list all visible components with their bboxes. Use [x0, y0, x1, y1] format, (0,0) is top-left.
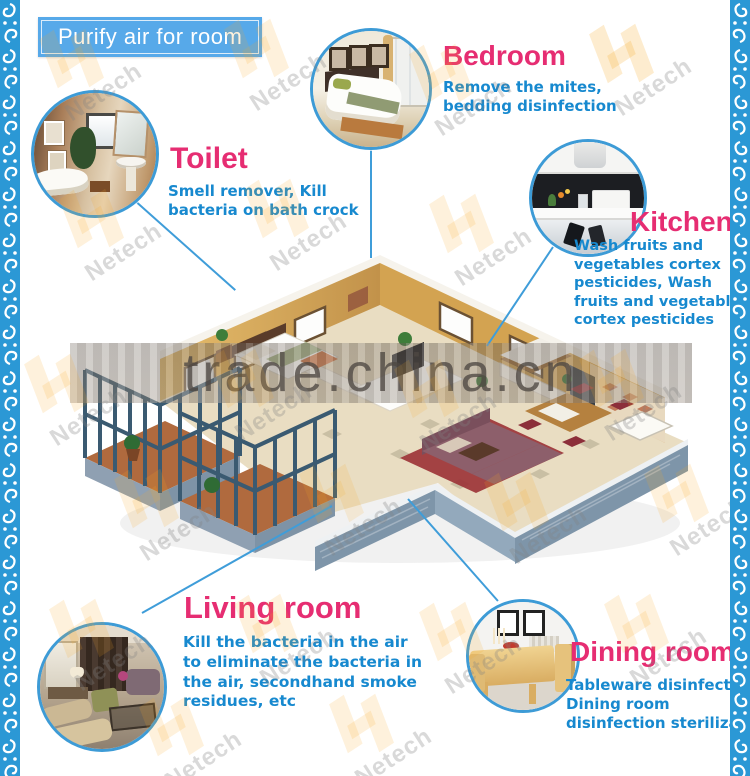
living-room-title: Living room [184, 590, 361, 626]
netech-watermark-text: Netech [350, 722, 437, 776]
living-photo-circle [37, 622, 167, 752]
mirror [112, 110, 149, 158]
wall-art [44, 121, 64, 145]
connector-line-bedroom [370, 145, 372, 258]
bedroom-photo-circle [310, 28, 432, 150]
flower [565, 189, 570, 194]
header-badge: Purify air for room [38, 17, 262, 57]
toilet-photo-circle [31, 90, 159, 218]
range-hood [574, 142, 606, 168]
toilet-description: Smell remover, Kill bacteria on bath cro… [168, 182, 359, 220]
trade-watermark-text: trade.china.cn [183, 342, 578, 404]
netech-watermark-text: Netech [610, 52, 697, 122]
wall-art [369, 44, 389, 68]
dining-room-description: Tableware disinfection. Dining room disi… [566, 676, 750, 734]
wall-art [523, 610, 545, 636]
lamp [70, 667, 84, 678]
bedroom-description: Remove the mites, bedding disinfection [443, 78, 617, 116]
table-leg [529, 684, 536, 704]
countertop [532, 208, 644, 218]
wall-art [349, 45, 369, 69]
trade-watermark-band: trade.china.cn [70, 343, 692, 403]
page-title: Purify air for room [58, 24, 242, 49]
ornamental-border-left [0, 0, 20, 776]
stool [90, 181, 110, 192]
window [44, 641, 78, 689]
living-room-description: Kill the bacteria in the air to eliminat… [183, 633, 422, 712]
sink-pedestal [126, 167, 136, 191]
ornamental-border-right [730, 0, 750, 776]
flowers [118, 671, 128, 681]
back-sofa [126, 669, 160, 695]
bedroom-title: Bedroom [443, 40, 566, 72]
wall-art [329, 47, 349, 71]
dining-room-title: Dining room [570, 636, 735, 668]
glass [578, 194, 588, 209]
candles [493, 628, 505, 644]
green-pillow [332, 78, 351, 90]
plant [70, 127, 96, 169]
sideboard [48, 687, 88, 699]
dining-photo-circle [466, 599, 580, 713]
kitchen-description: Wash fruits and vegetables cortex pestic… [574, 237, 749, 330]
curtains [80, 637, 128, 691]
glass-table [109, 703, 157, 732]
counter-appliance [592, 190, 630, 210]
flower [558, 192, 564, 198]
infographic-page: Netech Netech Netech Netech Netech Netec… [0, 0, 750, 776]
counter-plant [548, 194, 556, 206]
header-badge-inner: Purify air for room [41, 20, 259, 54]
netech-watermark-text: Netech [160, 725, 247, 776]
kitchen-title: Kitchen [630, 206, 733, 238]
chair [469, 654, 485, 692]
toilet-title: Toilet [170, 142, 248, 176]
